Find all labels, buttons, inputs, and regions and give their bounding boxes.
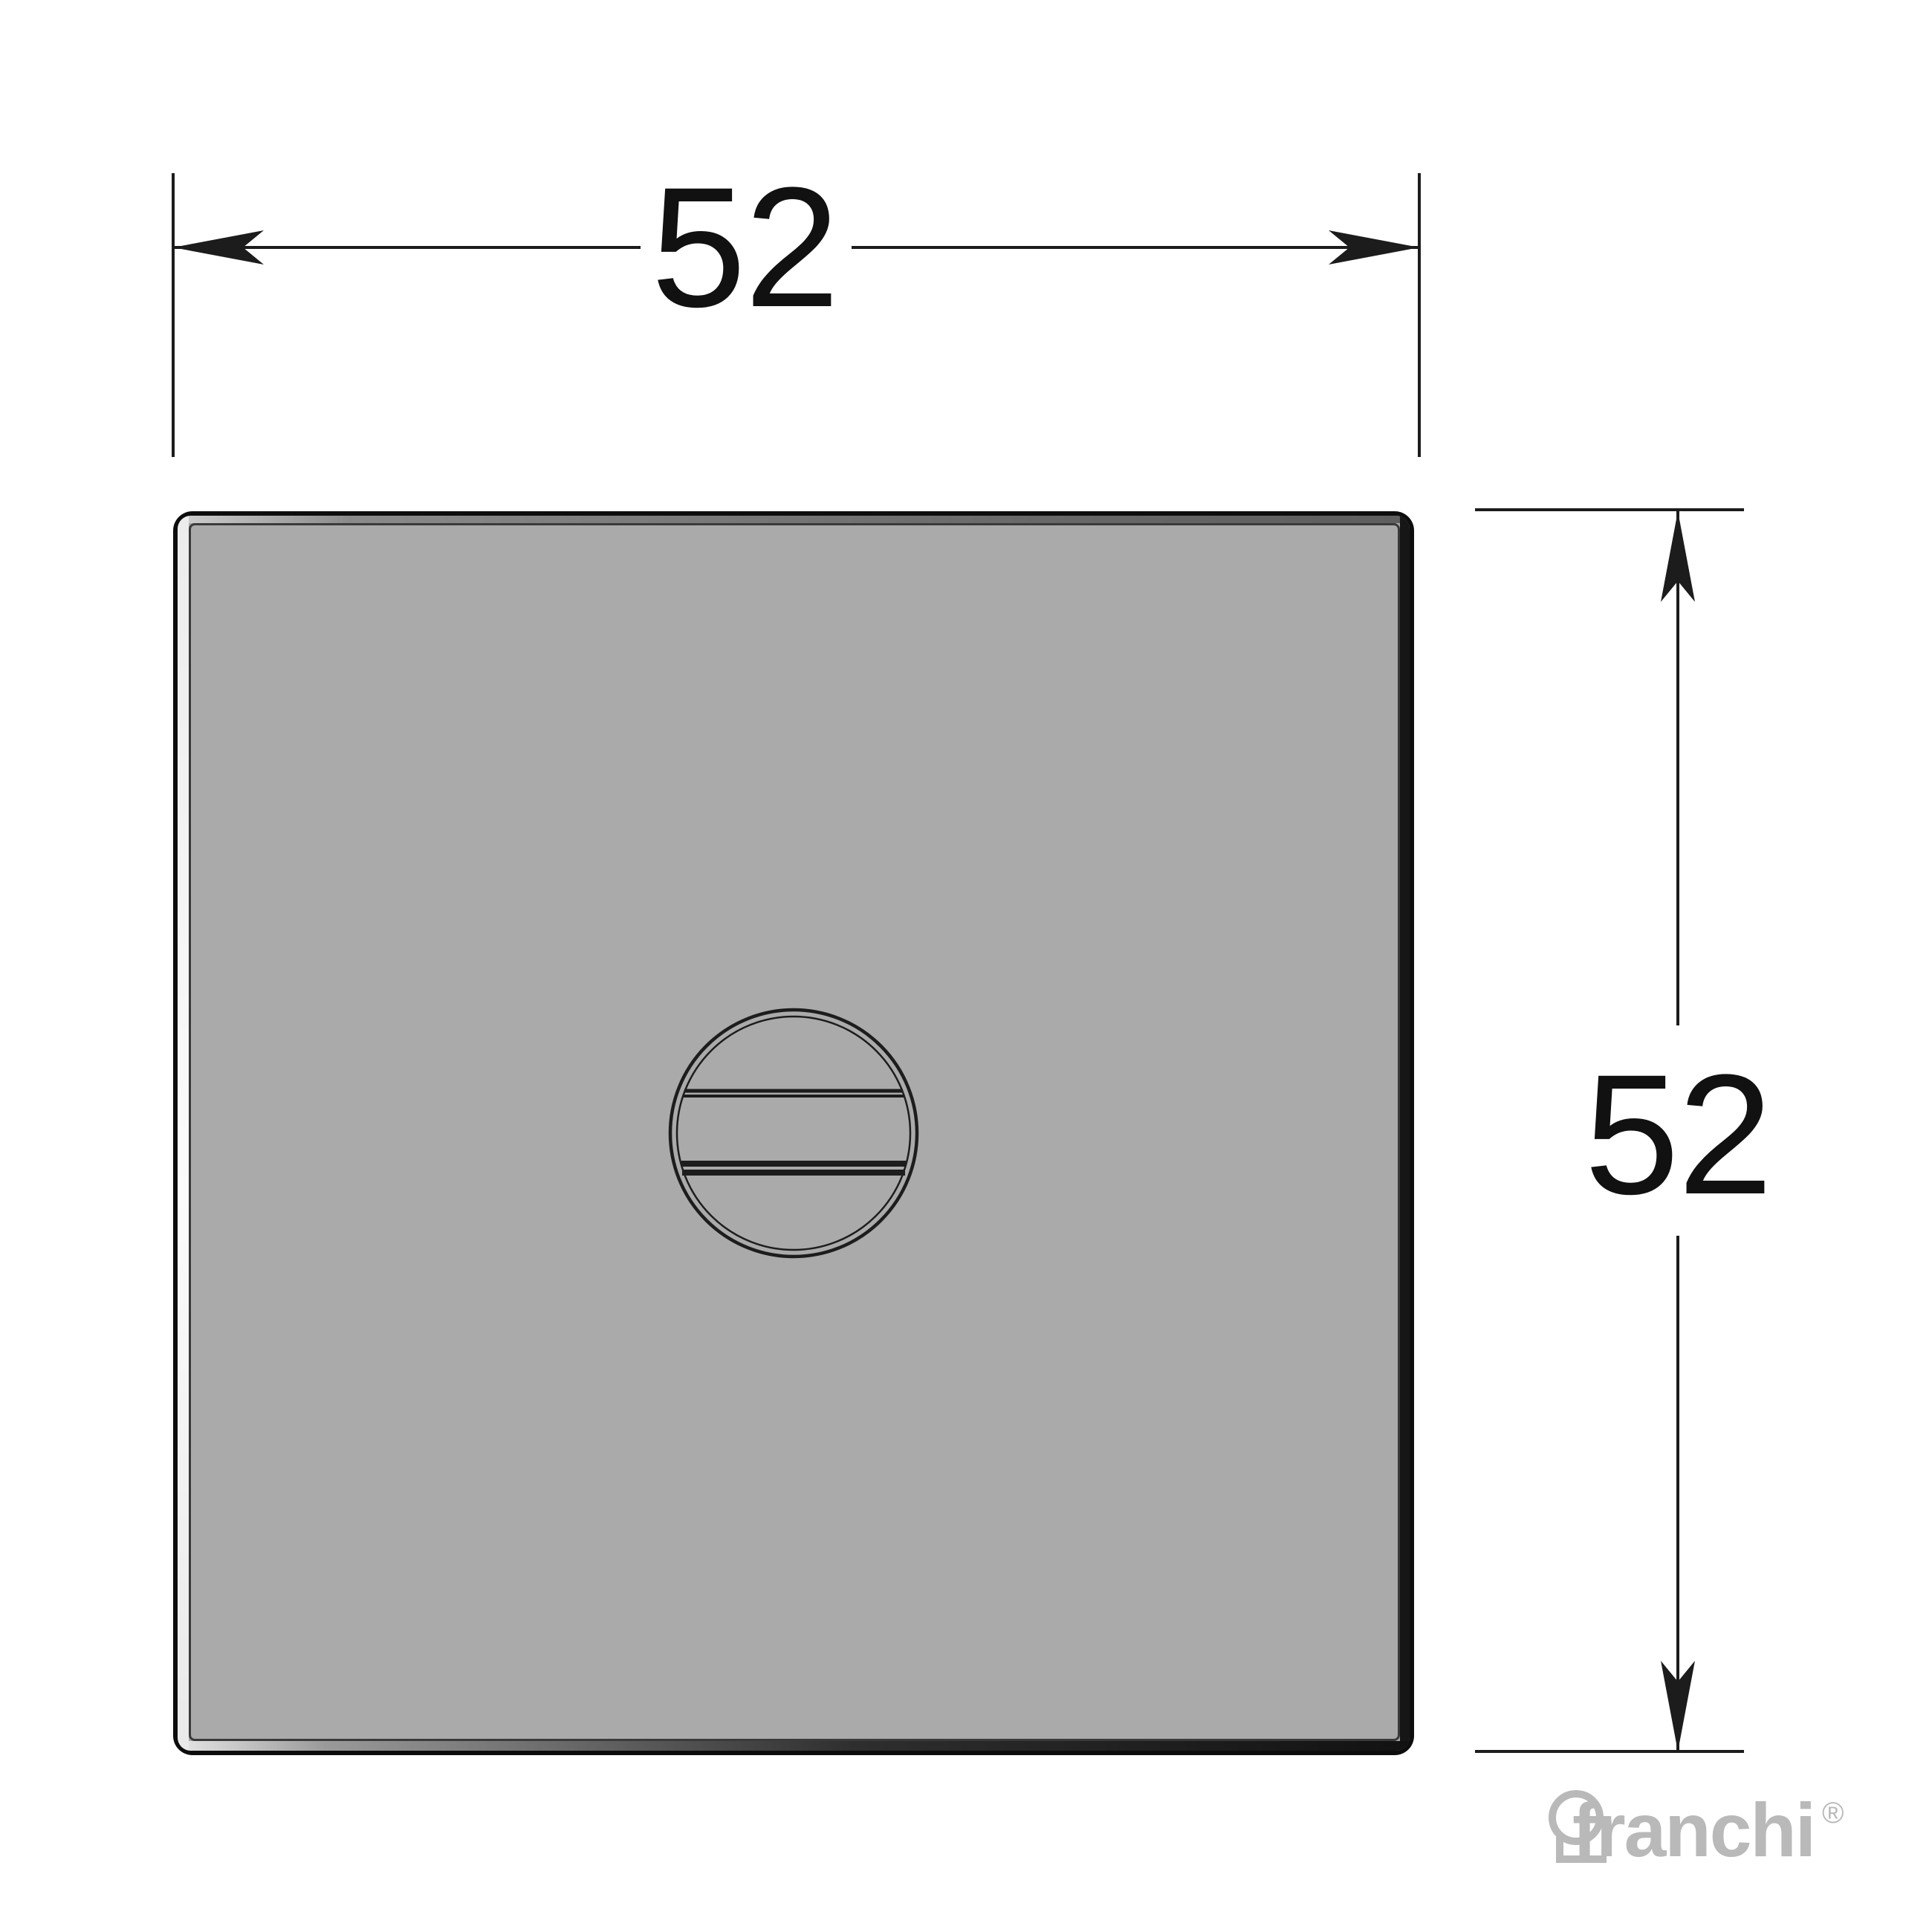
plate-face bbox=[178, 516, 1410, 1751]
plate-bevel-left bbox=[178, 516, 189, 1751]
extension-line-bottom bbox=[1475, 1750, 1744, 1753]
extension-line-top bbox=[1475, 508, 1744, 511]
arrow-down-icon bbox=[1659, 1660, 1697, 1753]
plate-bevel-bottom bbox=[178, 1741, 1410, 1751]
plate-bevel-top bbox=[178, 516, 1410, 523]
plate-outline bbox=[173, 511, 1414, 1755]
extension-line-left bbox=[172, 173, 175, 457]
dim-horizontal-label: 52 bbox=[651, 162, 838, 333]
plate-bevel-right bbox=[1400, 516, 1410, 1751]
brand-name: franchi bbox=[1572, 1792, 1815, 1868]
arrow-left-icon bbox=[172, 228, 265, 267]
technical-drawing-canvas: 52 52 bbox=[0, 0, 1932, 1932]
arrow-up-icon bbox=[1659, 510, 1697, 603]
arrow-right-icon bbox=[1328, 228, 1421, 267]
slotted-screw-circle-icon bbox=[666, 1005, 921, 1261]
registered-mark-icon: ® bbox=[1822, 1798, 1844, 1828]
extension-line-right bbox=[1418, 173, 1421, 457]
dim-vertical-label: 52 bbox=[1584, 1049, 1771, 1220]
